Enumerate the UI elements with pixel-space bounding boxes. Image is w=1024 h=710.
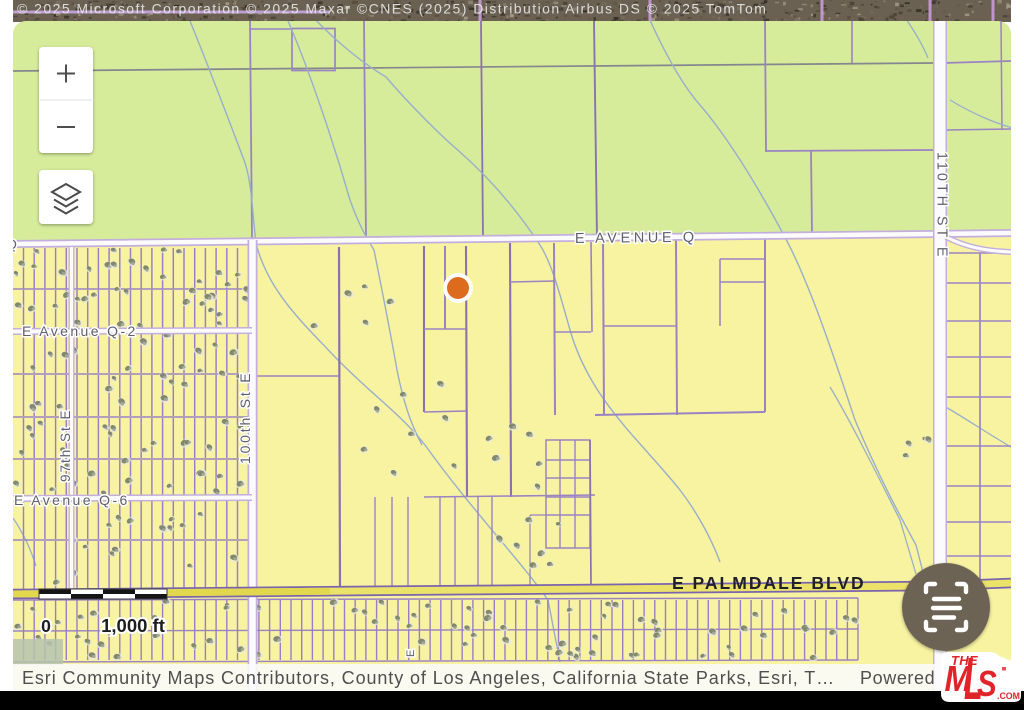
svg-text:E Avenue Q-2: E Avenue Q-2 — [22, 323, 138, 339]
svg-text:0: 0 — [41, 616, 51, 636]
svg-text:Esri Community Maps Contributo: Esri Community Maps Contributors, County… — [22, 668, 835, 688]
svg-text:97th St E: 97th St E — [58, 408, 73, 482]
svg-text:E AVENUE Q: E AVENUE Q — [575, 230, 698, 247]
svg-text:E PALMDALE BLVD: E PALMDALE BLVD — [672, 573, 866, 593]
svg-text:S: S — [977, 663, 997, 703]
svg-text:E Avenue Q-6: E Avenue Q-6 — [14, 492, 130, 508]
svg-text:110TH ST E: 110TH ST E — [934, 152, 950, 259]
svg-text:100th St E: 100th St E — [237, 371, 253, 464]
svg-text:.COM: .COM — [997, 691, 1020, 701]
svg-text:© 2025 Microsoft Corporation ©: © 2025 Microsoft Corporation © 2025 Maxa… — [17, 1, 767, 17]
svg-text:1,000 ft: 1,000 ft — [101, 615, 165, 636]
svg-text:E: E — [405, 650, 417, 657]
